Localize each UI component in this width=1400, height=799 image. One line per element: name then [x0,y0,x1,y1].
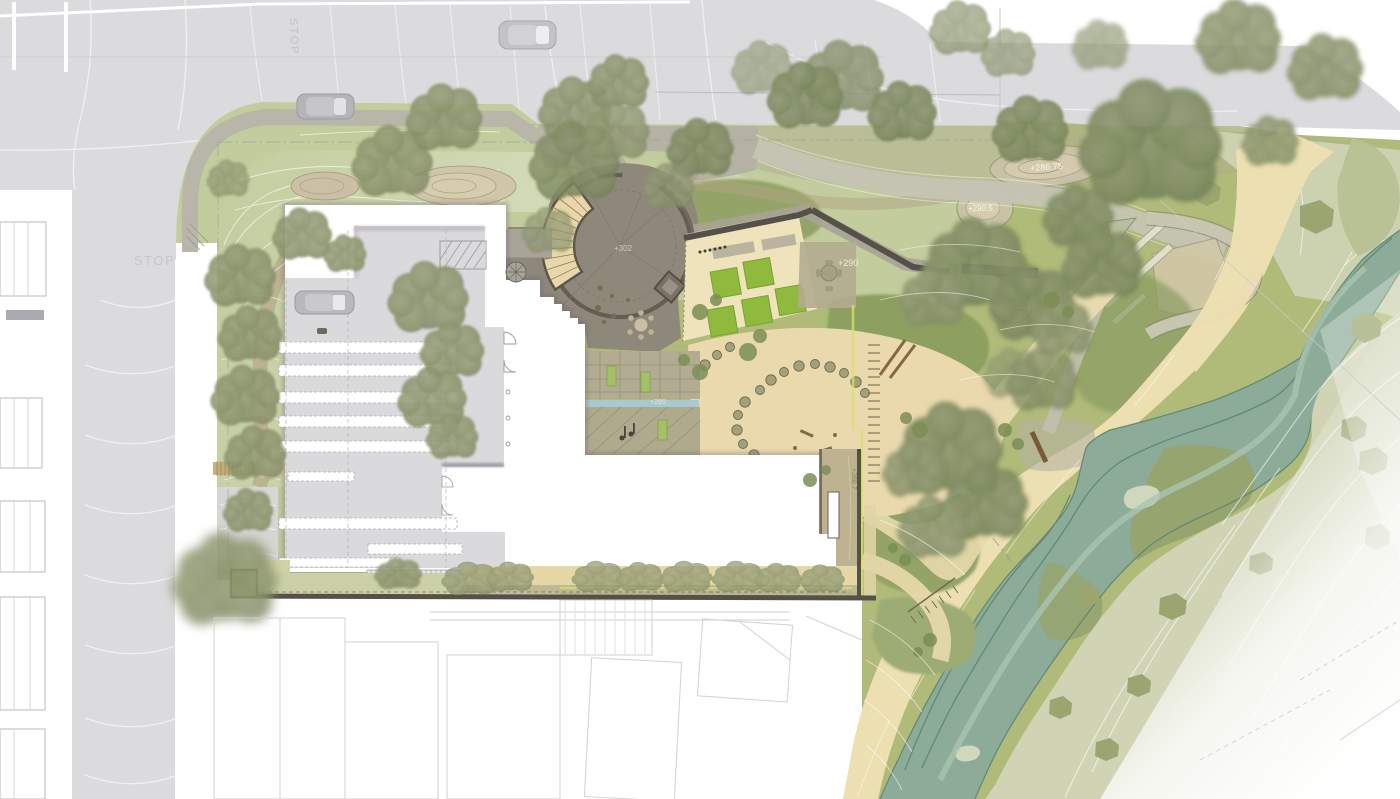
svg-text:+295: +295 [650,399,666,406]
svg-text:+288.7: +288.7 [850,468,857,490]
svg-text:+290: +290 [838,258,858,268]
svg-text:+290.5: +290.5 [968,204,993,213]
svg-text:STOP: STOP [134,253,175,268]
svg-text:+302: +302 [614,244,633,253]
svg-text:STOP: STOP [287,18,300,56]
